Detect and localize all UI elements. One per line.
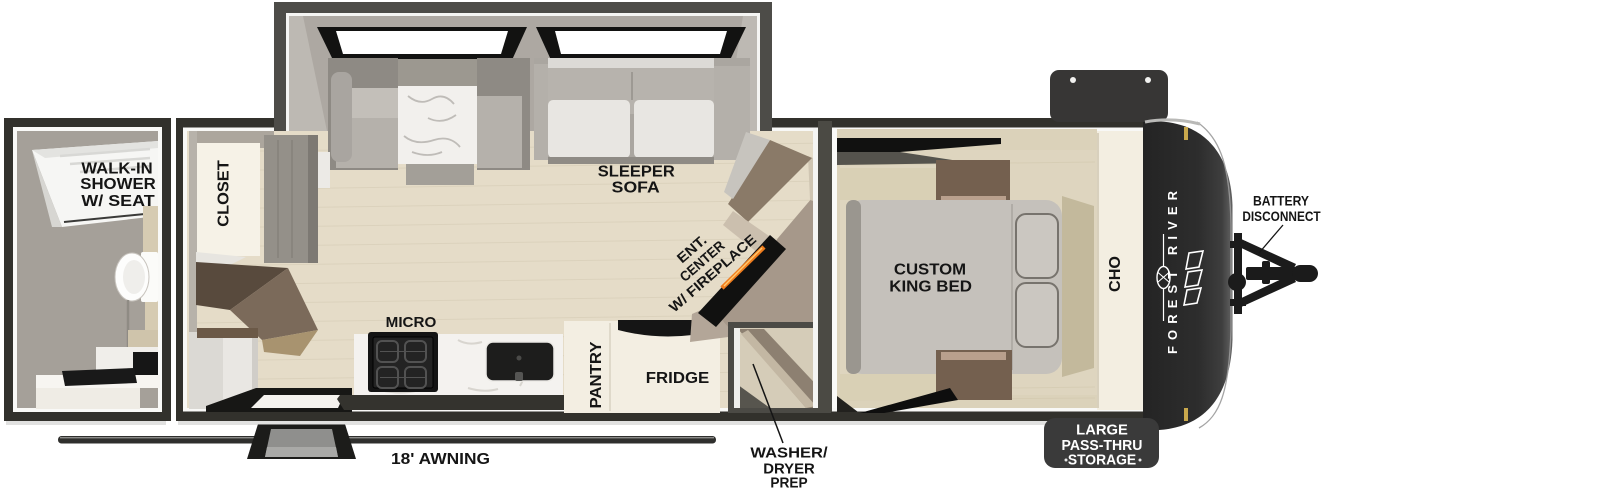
svg-text:BATTERY: BATTERY	[1253, 193, 1310, 209]
svg-text:KING BED: KING BED	[889, 278, 972, 295]
svg-text:SHOWER: SHOWER	[80, 176, 156, 193]
svg-text:CUSTOM: CUSTOM	[894, 262, 966, 279]
svg-text:CHO: CHO	[1107, 256, 1124, 292]
svg-text:MICRO: MICRO	[386, 314, 437, 331]
svg-text:LARGE: LARGE	[1076, 423, 1128, 439]
svg-text:FRIDGE: FRIDGE	[646, 370, 710, 387]
svg-text:DISCONNECT: DISCONNECT	[1242, 208, 1321, 224]
svg-text:WASHER/: WASHER/	[750, 445, 828, 462]
svg-text:SOFA: SOFA	[612, 180, 660, 197]
svg-text:CLOSET: CLOSET	[216, 160, 233, 227]
svg-text:SLEEPER: SLEEPER	[598, 164, 675, 181]
svg-text:STORAGE: STORAGE	[1068, 452, 1137, 468]
svg-text:PREP: PREP	[770, 475, 807, 488]
svg-text:WALK-IN: WALK-IN	[81, 161, 152, 178]
svg-text:PANTRY: PANTRY	[588, 341, 605, 409]
svg-text:18' AWNING: 18' AWNING	[391, 451, 490, 468]
